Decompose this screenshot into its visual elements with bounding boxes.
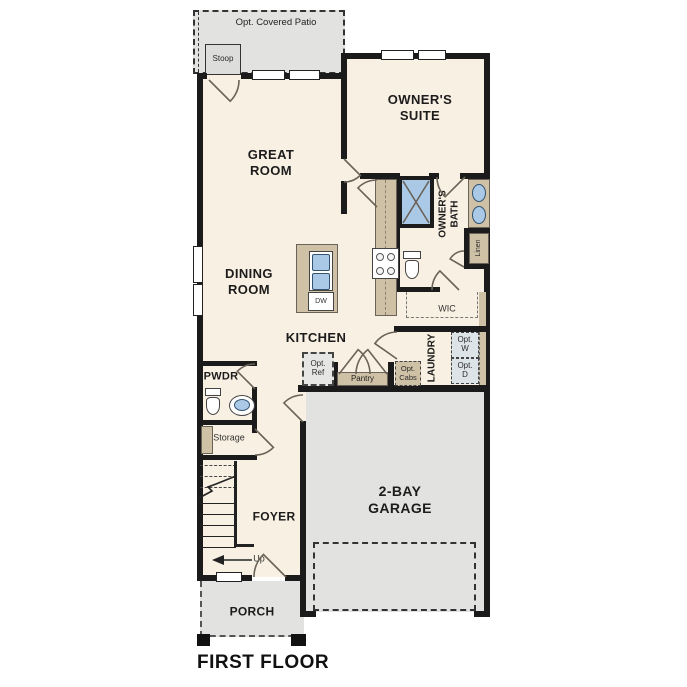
- porch-post-right: [291, 634, 306, 646]
- dryer-box: Opt. D: [451, 358, 479, 384]
- dw-label: DW: [315, 298, 327, 306]
- stair-tread: [200, 476, 236, 477]
- owners-bath-label: OWNER'S BATH: [438, 190, 461, 237]
- stair-tread: [200, 503, 236, 504]
- sink-basin: [312, 254, 330, 271]
- dishwasher-symbol: DW: [308, 292, 334, 311]
- foyer-label: FOYER: [253, 510, 296, 525]
- stair-tread: [200, 487, 236, 488]
- washer-box: Opt. W: [451, 332, 479, 358]
- pwdr-label: PWDR: [204, 370, 239, 383]
- kitchen-label: KITCHEN: [286, 330, 347, 346]
- stoop: Stoop: [205, 44, 241, 75]
- opt-ref-label: Opt. Ref: [310, 360, 325, 378]
- toilet-symbol: [205, 388, 221, 396]
- porch-label: PORCH: [230, 605, 275, 620]
- garage-label: 2-BAY GARAGE: [368, 483, 432, 517]
- floor-plan: Opt. Covered Patio Stoop: [0, 0, 687, 687]
- stair-tread: [200, 514, 236, 515]
- pantry-label: Pantry: [351, 375, 374, 384]
- window: [252, 70, 285, 80]
- wall: [388, 362, 394, 386]
- stair-landing-edge: [234, 544, 254, 547]
- stair-rail: [234, 461, 237, 547]
- wall: [300, 611, 316, 617]
- wall: [197, 420, 257, 425]
- pantry-shelf: Pantry: [337, 372, 388, 386]
- window: [193, 246, 203, 283]
- linen-label: Linen: [475, 239, 483, 256]
- wall: [474, 611, 490, 617]
- wall: [341, 53, 490, 59]
- patio-label: Opt. Covered Patio: [236, 17, 317, 29]
- patio-inner-dash: [198, 12, 199, 72]
- stair-tread: [200, 465, 236, 466]
- wall: [298, 385, 490, 392]
- owners-suite-label: OWNER'S SUITE: [388, 92, 452, 124]
- burner-icon: [387, 253, 395, 261]
- laundry-side-case: [479, 332, 486, 385]
- great-room-label: GREAT ROOM: [248, 147, 295, 179]
- stoop-label: Stoop: [213, 55, 234, 64]
- window: [193, 284, 203, 316]
- sheet-title: FIRST FLOOR: [197, 652, 329, 674]
- opt-cabs-label: Opt. Cabs: [399, 365, 417, 382]
- laundry-label: LAUNDRY: [426, 334, 438, 383]
- wall: [464, 264, 490, 269]
- storage-shelf: [201, 426, 213, 454]
- wall: [197, 361, 257, 366]
- wall: [197, 455, 257, 460]
- stairs: [200, 461, 236, 575]
- stair-tread: [200, 547, 236, 548]
- toilet-symbol: [403, 251, 421, 259]
- wall: [252, 423, 257, 433]
- stair-tread: [200, 525, 236, 526]
- island-sink-symbol: [309, 251, 333, 291]
- wic-label: WIC: [438, 304, 456, 315]
- shower-symbol: [398, 176, 434, 228]
- garage-door-recess: [313, 542, 476, 611]
- toilet-symbol: [206, 397, 220, 415]
- opt-ref-box: Opt. Ref: [302, 352, 334, 386]
- wall: [300, 421, 306, 617]
- opt-w-label: Opt. W: [457, 336, 472, 354]
- burner-icon: [376, 253, 384, 261]
- sink-basin: [312, 273, 330, 290]
- storage-label: Storage: [213, 433, 245, 444]
- stair-tread: [200, 536, 236, 537]
- wall: [285, 575, 306, 581]
- opt-d-label: Opt. D: [457, 362, 472, 380]
- toilet-symbol: [405, 260, 419, 279]
- opt-cabs-box: Opt. Cabs: [395, 361, 421, 386]
- stove-symbol: [372, 248, 399, 279]
- wic-side-case: [479, 292, 486, 326]
- sink-bowl: [234, 399, 250, 411]
- window: [418, 50, 446, 60]
- burner-icon: [376, 267, 384, 275]
- wall: [341, 181, 347, 214]
- window: [381, 50, 414, 60]
- window: [289, 70, 320, 80]
- wall: [341, 53, 347, 159]
- sink-symbol: [472, 206, 486, 224]
- sink-symbol: [472, 184, 486, 202]
- up-label: Up: [253, 554, 265, 565]
- burner-icon: [387, 267, 395, 275]
- porch-post-left: [197, 634, 210, 646]
- dining-room-label: DINING ROOM: [225, 266, 273, 298]
